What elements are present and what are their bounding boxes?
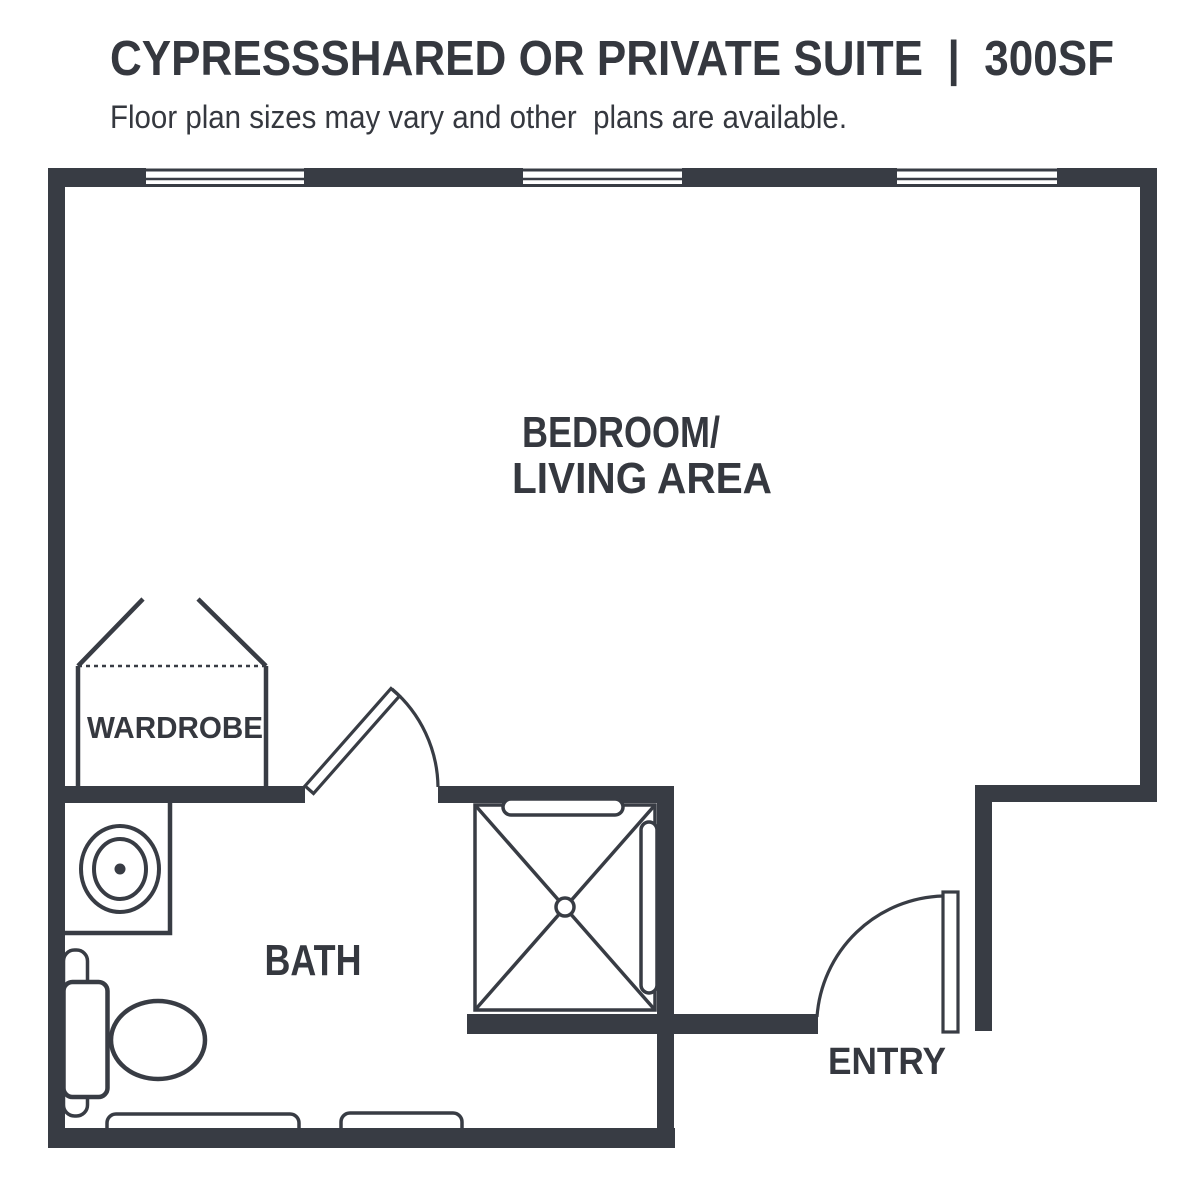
window-3 — [897, 168, 1057, 187]
shower-grab-bar-top — [503, 799, 623, 815]
shower-drain — [556, 898, 574, 916]
bath-east-wall — [657, 786, 674, 1148]
windows — [146, 168, 1057, 187]
header: CYPRESSSHARED OR PRIVATE SUITE | 300SF F… — [110, 32, 1114, 135]
sink-drain — [115, 864, 126, 875]
bottom-wall — [48, 1128, 675, 1148]
wardrobe-symbol — [78, 599, 266, 790]
shower-grab-bar-right — [641, 822, 657, 993]
toilet-tank — [64, 982, 108, 1097]
page-title: CYPRESSSHARED OR PRIVATE SUITE | 300SF — [110, 32, 1114, 86]
entry-step-wall-horizontal — [975, 785, 1157, 802]
bath-door-symbol — [305, 689, 438, 794]
bath-door-swing-arc — [392, 689, 438, 787]
wardrobe-open-door-right — [198, 599, 266, 666]
bedroom-living-label-line1: BEDROOM/ — [522, 408, 720, 457]
bath-door-leaf — [305, 689, 400, 794]
bedroom-living-label-line2: LIVING AREA — [512, 454, 772, 503]
wardrobe-label: WARDROBE — [87, 710, 263, 745]
right-wall — [1140, 168, 1157, 802]
entry-door-symbol — [817, 892, 958, 1032]
shower-south-wall — [467, 1014, 818, 1034]
toilet-symbol — [64, 950, 206, 1116]
floor-plan-canvas: CYPRESSSHARED OR PRIVATE SUITE | 300SF F… — [0, 0, 1200, 1182]
shower-symbol — [475, 799, 657, 1010]
toilet-bowl — [111, 1001, 205, 1079]
window-1 — [146, 168, 304, 187]
page-subtitle: Floor plan sizes may vary and other plan… — [110, 99, 847, 135]
bath-label: BATH — [265, 936, 362, 985]
entry-door-leaf — [943, 892, 958, 1032]
wardrobe-open-door-left — [78, 599, 143, 666]
window-2 — [523, 168, 682, 187]
entry-label: ENTRY — [828, 1041, 946, 1083]
sink-vanity — [64, 803, 170, 933]
entry-step-wall-vertical — [975, 785, 992, 1031]
entry-door-swing-arc — [817, 896, 943, 1017]
fixtures — [64, 599, 658, 1138]
